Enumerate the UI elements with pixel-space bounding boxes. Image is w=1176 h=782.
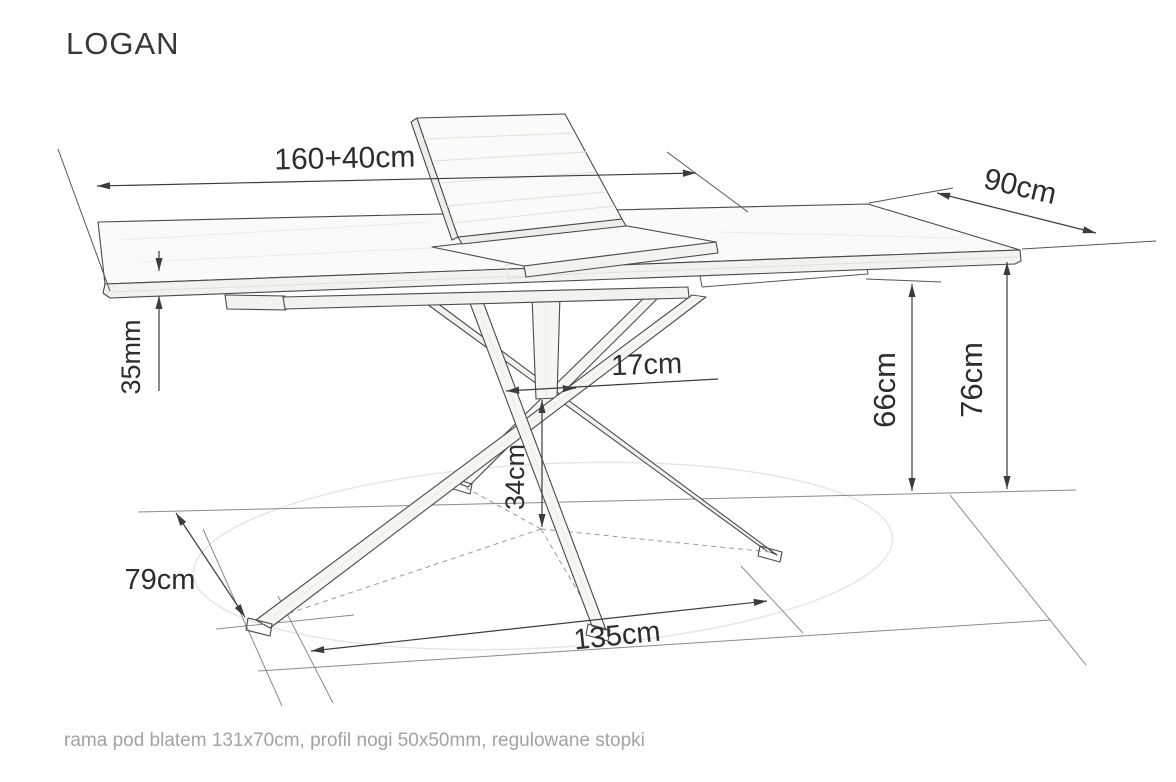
dim-underframe-height-label: 66cm [867,352,902,428]
table-technical-drawing: 160+40cm 90cm 35mm 17cm 66cm 76cm [0,0,1176,782]
dim-table-width-label: 90cm [981,162,1060,211]
dim-base-length-label: 135cm [572,616,662,657]
spec-note: rama pod blatem 131x70cm, profil nogi 50… [64,730,645,752]
dim-table-height-label: 76cm [954,342,989,418]
dim-top-thickness-label: 35mm [116,319,146,394]
product-dimension-sheet: LOGAN [0,0,1176,782]
dim-column-width-label: 17cm [611,348,683,382]
dim-underframe-height: 66cm [866,279,941,491]
floor-outline [138,446,1086,706]
dim-base-cross-height-label: 34cm [500,444,530,510]
dim-table-length-label: 160+40cm [274,141,416,177]
dim-base-depth-label: 79cm [125,564,196,596]
dim-table-height: 76cm [954,262,1007,489]
dim-base-depth: 79cm [125,513,245,617]
